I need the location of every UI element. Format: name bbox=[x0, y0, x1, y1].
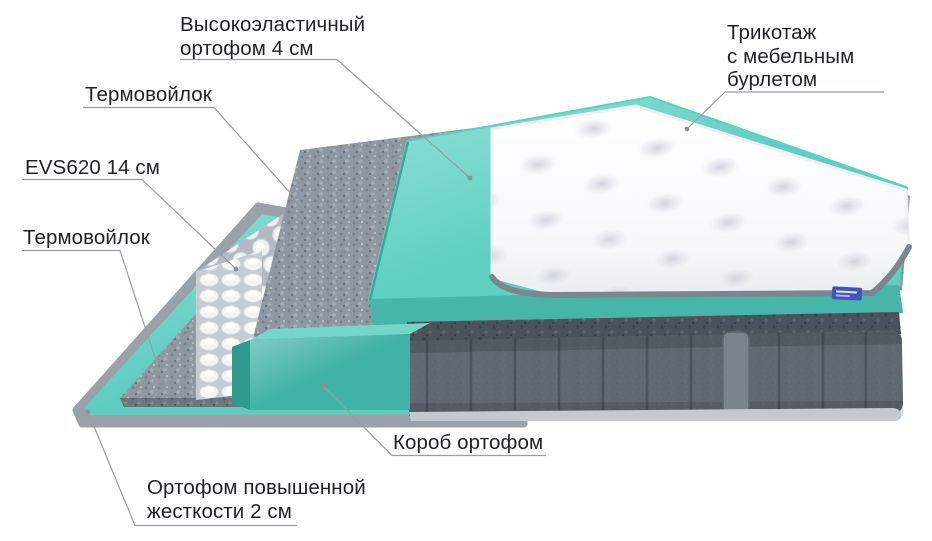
quilted-cover bbox=[492, 106, 909, 301]
label-line: EVS620 14 см bbox=[25, 156, 160, 180]
brand-badge bbox=[832, 286, 863, 301]
label-line: бурлетом bbox=[727, 68, 854, 92]
label-line: Термовойлок bbox=[23, 226, 150, 250]
label-line: жесткости 2 см bbox=[147, 500, 366, 524]
label-line: Ортофом повышенной bbox=[147, 476, 366, 500]
brand-badge-bg bbox=[832, 286, 863, 301]
label-felt-bottom: Термовойлок bbox=[23, 226, 150, 250]
box-left bbox=[232, 340, 250, 410]
box-sheen bbox=[250, 334, 410, 410]
label-line: с мебельным bbox=[727, 45, 854, 69]
label-line: Высокоэластичный bbox=[180, 13, 365, 37]
label-line: Трикотаж bbox=[727, 21, 854, 45]
label-foam-box: Короб ортофом bbox=[393, 431, 543, 455]
label-springs: EVS620 14 см bbox=[25, 156, 160, 180]
label-knit-cover: Трикотаж с мебельным бурлетом bbox=[727, 21, 854, 92]
mattress-side bbox=[407, 312, 903, 421]
label-hard-foam: Ортофом повышенной жесткости 2 см bbox=[147, 476, 366, 523]
handle-strap bbox=[723, 332, 749, 413]
label-felt-top: Термовойлок bbox=[85, 83, 212, 107]
leader-springs bbox=[22, 180, 236, 270]
mattress-layers-diagram: Высокоэластичный ортофом 4 см Трикотаж с… bbox=[0, 0, 932, 541]
label-elastic-foam: Высокоэластичный ортофом 4 см bbox=[180, 13, 365, 60]
label-line: Термовойлок bbox=[85, 83, 212, 107]
label-line: Короб ортофом bbox=[393, 431, 543, 455]
foam-box bbox=[232, 323, 430, 410]
quilt-dimples bbox=[492, 106, 909, 295]
label-line: ортофом 4 см bbox=[180, 37, 365, 61]
